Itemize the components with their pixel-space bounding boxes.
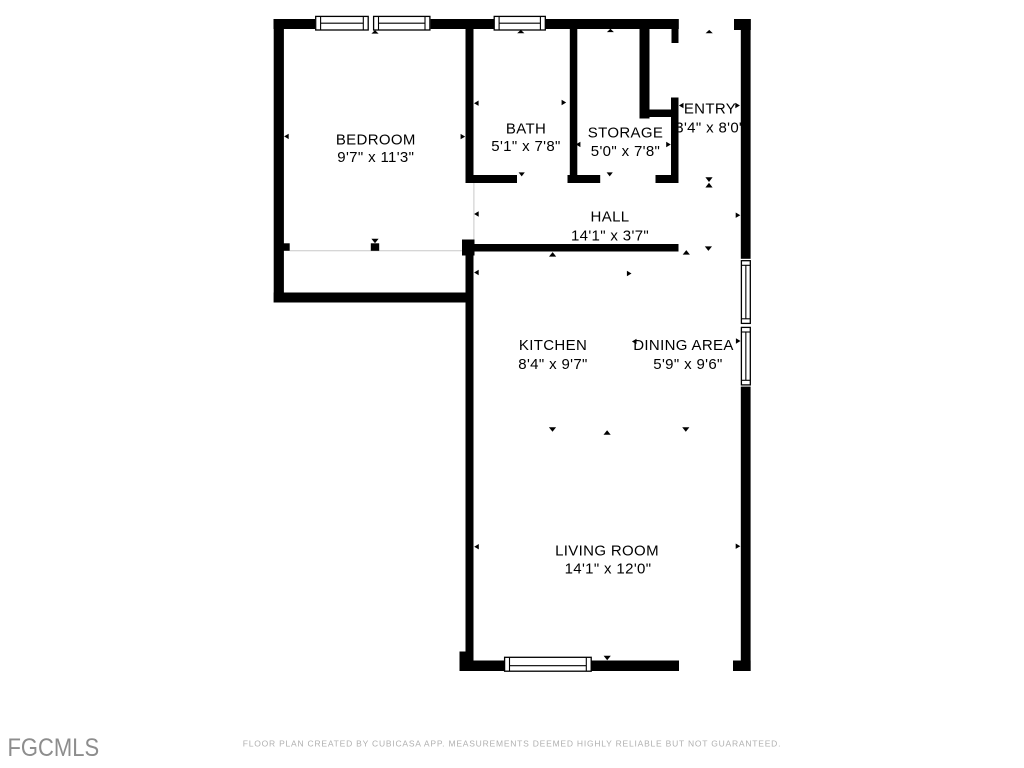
- svg-text:HALL: HALL: [591, 208, 630, 225]
- svg-text:8'4" x 9'7": 8'4" x 9'7": [518, 356, 587, 373]
- svg-text:KITCHEN: KITCHEN: [519, 337, 587, 354]
- svg-text:LIVING ROOM: LIVING ROOM: [555, 543, 659, 560]
- svg-text:BATH: BATH: [506, 120, 546, 137]
- svg-text:ENTRY: ENTRY: [684, 100, 736, 117]
- svg-text:14'1" x 3'7": 14'1" x 3'7": [571, 227, 649, 244]
- svg-text:14'1" x 12'0": 14'1" x 12'0": [565, 560, 652, 577]
- svg-text:BEDROOM: BEDROOM: [336, 131, 416, 148]
- svg-text:3'4" x 8'0": 3'4" x 8'0": [675, 119, 744, 136]
- svg-text:5'1" x 7'8": 5'1" x 7'8": [491, 138, 560, 155]
- svg-text:5'0" x 7'8": 5'0" x 7'8": [591, 143, 660, 160]
- svg-text:DINING AREA: DINING AREA: [633, 337, 734, 354]
- svg-text:5'9" x 9'6": 5'9" x 9'6": [653, 356, 722, 373]
- svg-text:9'7" x 11'3": 9'7" x 11'3": [337, 149, 414, 166]
- svg-text:FGCMLS: FGCMLS: [8, 734, 100, 762]
- svg-text:FLOOR PLAN CREATED BY CUBICASA: FLOOR PLAN CREATED BY CUBICASA APP. MEAS…: [243, 738, 781, 748]
- svg-text:STORAGE: STORAGE: [588, 124, 664, 141]
